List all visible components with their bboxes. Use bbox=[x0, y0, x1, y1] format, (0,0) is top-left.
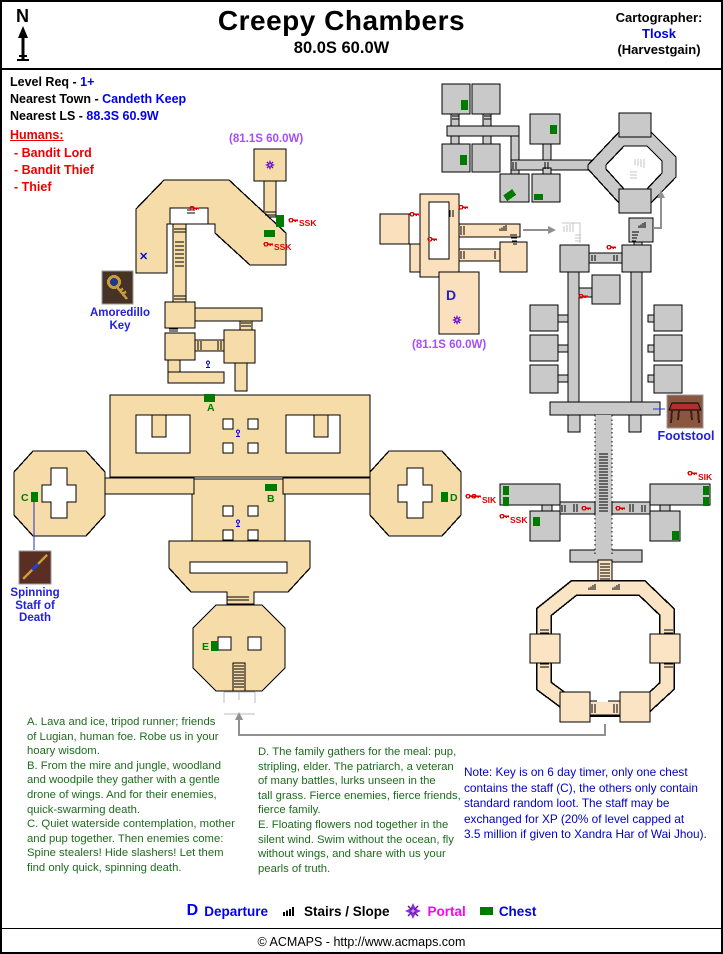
chest bbox=[534, 194, 543, 200]
dungeon-info: Level Req - 1+ Nearest Town - Candeth Ke… bbox=[10, 74, 186, 125]
departure-symbol: D bbox=[187, 902, 199, 920]
ssk-tag: SSK bbox=[510, 515, 528, 525]
key-icon bbox=[459, 205, 468, 209]
amoredillo-key-image bbox=[102, 271, 133, 304]
east-corridor bbox=[283, 478, 373, 494]
legend-portal: Portal bbox=[404, 902, 466, 920]
portal-coord-label-departure: (81.1S 60.0W) bbox=[412, 339, 486, 351]
exit-door-outline bbox=[224, 692, 255, 714]
amoredillo-key-label: Amoredillo Key bbox=[80, 307, 160, 332]
chest-label: Chest bbox=[499, 904, 537, 919]
chest-e-label: E bbox=[202, 641, 209, 653]
chest bbox=[460, 155, 467, 165]
map-coordinates: 80.0S 60.0W bbox=[102, 39, 581, 58]
departure-letter: D bbox=[446, 287, 456, 303]
chest bbox=[204, 394, 215, 402]
chest bbox=[31, 492, 38, 502]
chest-d-label: D bbox=[450, 492, 458, 504]
chest bbox=[703, 486, 709, 495]
room-cluster bbox=[165, 302, 262, 391]
chest bbox=[461, 100, 468, 110]
compass-north-icon: N bbox=[10, 4, 36, 66]
spinning-staff-image bbox=[19, 551, 51, 584]
departure-label: Departure bbox=[204, 904, 268, 919]
legend-departure: D Departure bbox=[187, 902, 268, 920]
cartographer-server: (Harvestgain) bbox=[603, 42, 715, 58]
lamp-icon bbox=[206, 361, 210, 368]
nearest-town-value: Candeth Keep bbox=[102, 92, 186, 106]
copyright-text: © ACMAPS - http://www.acmaps.com bbox=[258, 935, 466, 949]
key-timer-note: Note: Key is on 6 day timer, only one ch… bbox=[464, 765, 723, 843]
key-icon bbox=[688, 471, 697, 475]
west-corridor bbox=[98, 478, 194, 494]
chest-c-label: C bbox=[21, 492, 29, 504]
key-icon bbox=[410, 212, 419, 216]
stairs-icon bbox=[282, 905, 298, 918]
chest bbox=[211, 641, 218, 651]
sik-tag: SIK bbox=[482, 495, 497, 505]
level-req-label: Level Req - bbox=[10, 75, 80, 89]
ssk-tag: SSK bbox=[299, 218, 317, 228]
stairs-corridor-west bbox=[173, 224, 186, 302]
x-marker: ✕ bbox=[139, 251, 148, 263]
stairs-icon-faded bbox=[562, 223, 581, 243]
stairs-icon bbox=[175, 242, 184, 266]
legend-stairs: Stairs / Slope bbox=[282, 904, 390, 919]
chest bbox=[503, 486, 509, 495]
key-icon bbox=[500, 514, 509, 518]
chest bbox=[276, 215, 284, 227]
chest bbox=[265, 484, 277, 491]
humans-list: - Bandit Lord - Bandit Thief - Thief bbox=[14, 145, 94, 196]
cartographer-label: Cartographer: bbox=[603, 10, 715, 26]
notes-a-b-c: A. Lava and ice, tripod runner; friends … bbox=[27, 715, 257, 876]
chest bbox=[503, 497, 509, 506]
goblet-notch bbox=[190, 562, 287, 573]
ssk-tag: SSK bbox=[274, 242, 292, 252]
footer: © ACMAPS - http://www.acmaps.com bbox=[2, 928, 721, 954]
cartographer-block: Cartographer: Tlosk (Harvestgain) bbox=[603, 10, 715, 58]
footstool-image bbox=[667, 395, 703, 428]
chest bbox=[672, 531, 679, 540]
nearest-ls-value: 88.3S 60.9W bbox=[86, 109, 158, 123]
chest-icon bbox=[480, 907, 493, 915]
header: N Creepy Chambers 80.0S 60.0W Cartograph… bbox=[2, 2, 721, 70]
spinning-staff-label: Spinning Staff of Death bbox=[3, 587, 67, 625]
chest bbox=[533, 517, 540, 526]
page-title: Creepy Chambers bbox=[102, 5, 581, 37]
stairs-label: Stairs / Slope bbox=[304, 904, 390, 919]
cartographer-name: Tlosk bbox=[603, 26, 715, 42]
portal-room-north bbox=[254, 149, 286, 217]
chest-a-label: A bbox=[207, 402, 215, 414]
portal-icon bbox=[404, 902, 422, 920]
notes-d-e: D. The family gathers for the meal: pup,… bbox=[258, 745, 463, 876]
portal-label: Portal bbox=[428, 904, 466, 919]
footstool-label: Footstool bbox=[650, 430, 722, 443]
legend: D Departure Stairs / Slope Portal Chest bbox=[2, 896, 721, 926]
level-req-value: 1+ bbox=[80, 75, 94, 89]
portal-coord-label-north: (81.1S 60.0W) bbox=[229, 133, 303, 145]
stairs-icon-faded bbox=[630, 159, 644, 178]
chest bbox=[264, 230, 275, 237]
svg-text:N: N bbox=[16, 6, 29, 26]
chest bbox=[441, 492, 448, 502]
key-icon bbox=[289, 218, 298, 222]
chest bbox=[550, 125, 557, 134]
humans-heading: Humans: bbox=[10, 128, 63, 142]
nearest-town-label: Nearest Town - bbox=[10, 92, 102, 106]
great-hall-upper bbox=[110, 395, 370, 477]
acmaps-dungeon-map-page: ✕ D A B C D E SSK SSK SSK SIK SIK N Cree… bbox=[0, 0, 723, 954]
legend-chest: Chest bbox=[480, 904, 537, 919]
sik-tag: SIK bbox=[698, 472, 713, 482]
chest-b-label: B bbox=[267, 493, 275, 505]
chest bbox=[703, 497, 709, 506]
nearest-ls-label: Nearest LS - bbox=[10, 109, 86, 123]
ring-loop-south bbox=[530, 550, 680, 722]
key-icon bbox=[607, 245, 616, 249]
